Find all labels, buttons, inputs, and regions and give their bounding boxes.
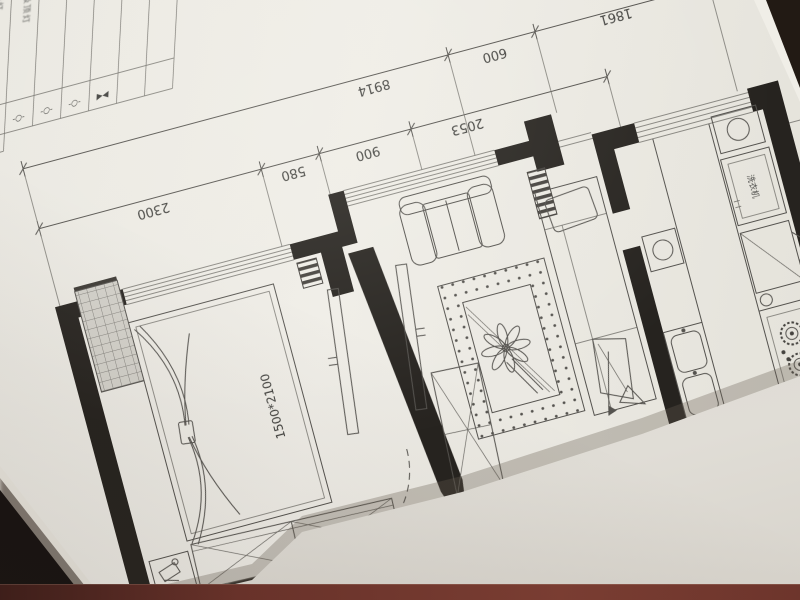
rug	[438, 258, 585, 439]
lamp-symbol-icon: -○-	[40, 103, 53, 117]
legend-grid-lines	[0, 0, 181, 166]
dim-900: 900	[354, 142, 382, 163]
gas-valve	[759, 293, 774, 308]
quilt	[587, 330, 646, 416]
table-edge-strip	[0, 584, 800, 600]
washing-machine-label: 洗衣机	[746, 173, 762, 199]
lamp-symbol-icon: -○-	[68, 95, 81, 109]
distribution-box-symbol-icon: ▶◀	[96, 88, 109, 102]
lamp-symbol-icon: -○-	[12, 111, 25, 125]
dim-1861: 1861	[598, 4, 634, 27]
dim-600: 600	[481, 44, 509, 65]
sliding-door-left	[318, 288, 358, 435]
bed-ribbon-decor	[134, 314, 245, 546]
burner-icon	[778, 320, 800, 347]
bedroom-window	[123, 244, 294, 304]
dim-580: 580	[279, 162, 307, 183]
fridge	[740, 216, 800, 293]
double-bed: 1500*2100	[129, 284, 334, 547]
bed-size-label: 1500*2100	[258, 372, 289, 440]
legend-item-label: 防水吸顶灯	[22, 0, 34, 26]
water-heater	[711, 105, 765, 154]
legend-table: 艺术吊灯 吸顶灯 防水吸顶灯 筒灯 射灯 暗藏灯带 单联开关 配电箱 -○- -…	[0, 0, 181, 166]
balcony-opening	[558, 133, 592, 148]
phone-icon	[157, 558, 183, 585]
bathroom-sink	[642, 228, 684, 272]
kitchen-window	[634, 93, 753, 143]
radiator	[527, 168, 557, 219]
windows	[113, 83, 760, 305]
legend-item-label: 吸顶灯	[0, 0, 6, 13]
photo-of-floor-plan: 艺术吊灯 吸顶灯 防水吸顶灯 筒灯 射灯 暗藏灯带 单联开关 配电箱 -○- -…	[0, 0, 800, 600]
threshold-hatch	[297, 258, 323, 288]
